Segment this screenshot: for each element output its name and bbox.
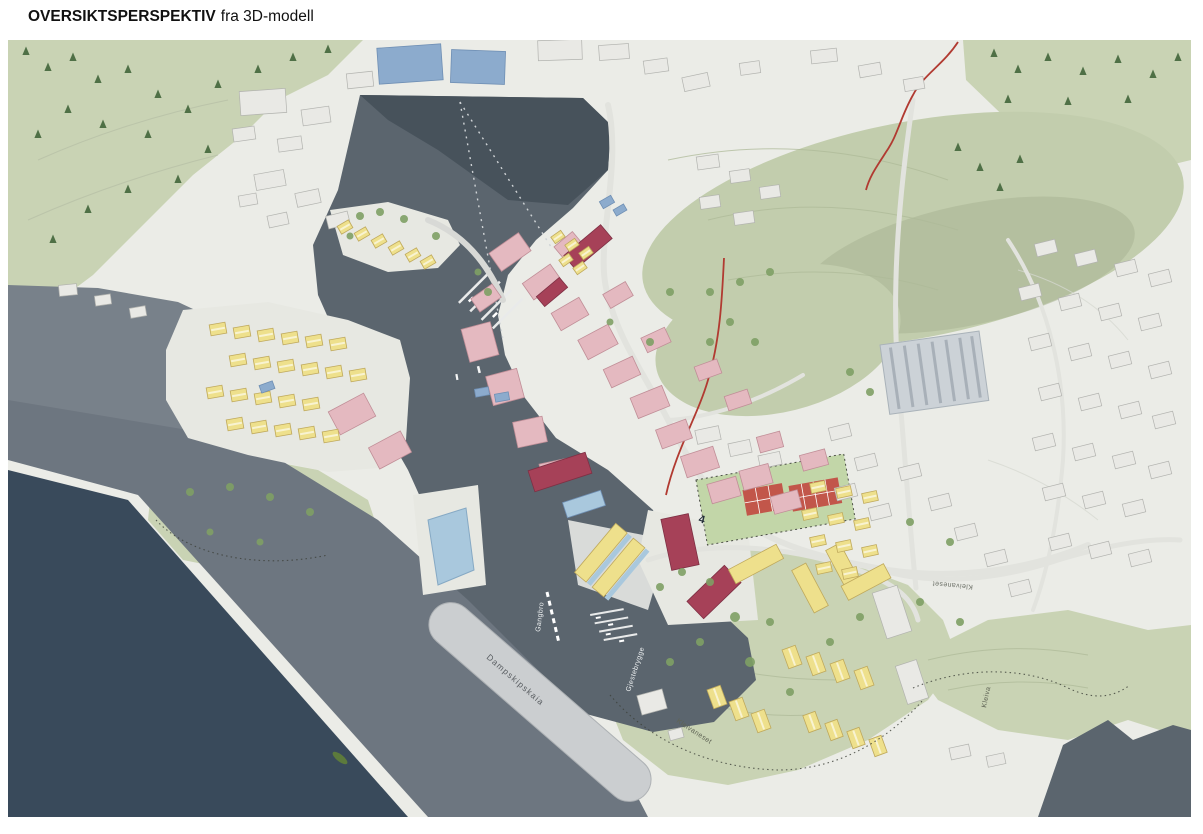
tree-icon bbox=[207, 529, 214, 536]
building bbox=[325, 365, 343, 379]
building bbox=[349, 368, 367, 382]
building bbox=[230, 388, 248, 402]
building bbox=[250, 420, 268, 434]
page-header: OVERSIKTSPERSPEKTIVfra 3D-modell bbox=[28, 8, 314, 26]
building bbox=[254, 391, 272, 405]
building bbox=[305, 334, 323, 348]
building bbox=[377, 44, 443, 84]
building bbox=[329, 337, 347, 351]
building bbox=[346, 71, 373, 89]
tree-icon bbox=[946, 538, 954, 546]
tree-icon bbox=[916, 598, 924, 606]
tree-icon bbox=[736, 278, 744, 286]
building bbox=[277, 359, 295, 373]
tree-icon bbox=[656, 583, 664, 591]
building bbox=[301, 362, 319, 376]
page-title: OVERSIKTSPERSPEKTIV bbox=[28, 8, 216, 25]
tree-icon bbox=[356, 212, 364, 220]
tree-icon bbox=[696, 638, 704, 646]
tree-icon bbox=[484, 288, 492, 296]
tree-icon bbox=[347, 233, 354, 240]
building bbox=[739, 61, 760, 76]
tree-icon bbox=[730, 612, 740, 622]
tree-icon bbox=[786, 688, 794, 696]
building bbox=[58, 284, 77, 297]
tree-icon bbox=[432, 232, 440, 240]
map-image: Gangbro Gjestebrygge Dampskipskaia Kleiv… bbox=[8, 40, 1191, 817]
tree-icon bbox=[726, 318, 734, 326]
building bbox=[513, 416, 548, 448]
building bbox=[253, 356, 271, 370]
tree-icon bbox=[866, 388, 874, 396]
tree-icon bbox=[766, 268, 774, 276]
building bbox=[94, 294, 111, 306]
building bbox=[281, 331, 299, 345]
tree-icon bbox=[956, 618, 964, 626]
building bbox=[450, 50, 505, 85]
tree-icon bbox=[745, 657, 755, 667]
building bbox=[278, 394, 296, 408]
hatched-field bbox=[880, 331, 989, 414]
page-subtitle: fra 3D-modell bbox=[221, 8, 314, 25]
building bbox=[729, 169, 750, 184]
building bbox=[810, 48, 837, 64]
building bbox=[733, 211, 754, 226]
building bbox=[301, 106, 331, 126]
tree-icon bbox=[646, 338, 654, 346]
building bbox=[759, 185, 780, 200]
tree-icon bbox=[846, 368, 854, 376]
building bbox=[274, 423, 292, 437]
building bbox=[302, 397, 320, 411]
building bbox=[206, 385, 224, 399]
building bbox=[538, 40, 583, 61]
building bbox=[232, 126, 256, 142]
building bbox=[298, 426, 316, 440]
tree-icon bbox=[226, 483, 234, 491]
tree-icon bbox=[257, 539, 264, 546]
3d-model-perspective: Gangbro Gjestebrygge Dampskipskaia Kleiv… bbox=[8, 40, 1191, 817]
building bbox=[226, 417, 244, 431]
tree-icon bbox=[400, 215, 408, 223]
tree-icon bbox=[678, 568, 686, 576]
tree-icon bbox=[706, 288, 714, 296]
tree-icon bbox=[607, 319, 614, 326]
tree-icon bbox=[186, 488, 194, 496]
tree-icon bbox=[666, 658, 674, 666]
tree-icon bbox=[666, 288, 674, 296]
building bbox=[599, 43, 630, 60]
building bbox=[257, 328, 275, 342]
building bbox=[229, 353, 247, 367]
tree-icon bbox=[266, 493, 274, 501]
building bbox=[209, 322, 227, 336]
tree-icon bbox=[826, 638, 834, 646]
building bbox=[233, 325, 251, 339]
building bbox=[699, 195, 720, 210]
tree-icon bbox=[306, 508, 314, 516]
tree-icon bbox=[475, 269, 482, 276]
page: OVERSIKTSPERSPEKTIVfra 3D-modell bbox=[0, 0, 1203, 834]
tree-icon bbox=[376, 208, 384, 216]
tree-icon bbox=[706, 338, 714, 346]
tree-icon bbox=[706, 578, 714, 586]
tree-icon bbox=[906, 518, 914, 526]
building bbox=[696, 154, 720, 170]
tree-icon bbox=[856, 613, 864, 621]
tree-icon bbox=[751, 338, 759, 346]
building bbox=[322, 429, 340, 443]
building bbox=[239, 88, 287, 115]
tree-icon bbox=[766, 618, 774, 626]
